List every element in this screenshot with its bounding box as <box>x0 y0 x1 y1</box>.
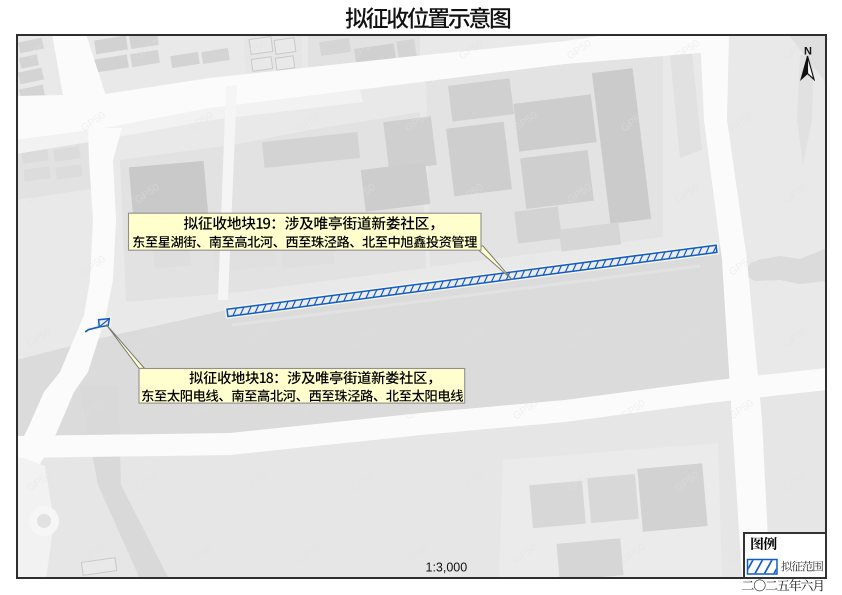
svg-text:N: N <box>804 46 812 58</box>
svg-text:1:3,000: 1:3,000 <box>426 561 468 575</box>
